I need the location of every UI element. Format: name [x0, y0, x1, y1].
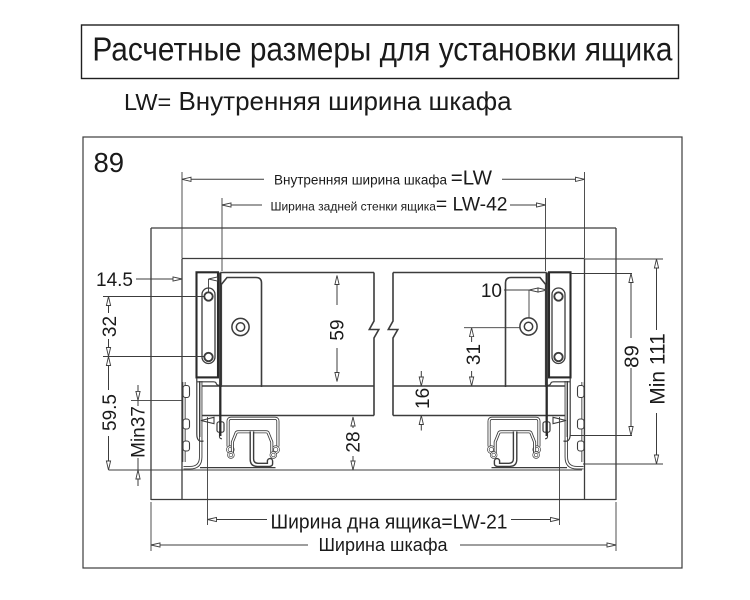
svg-text:28: 28 [344, 431, 365, 452]
svg-text:14.5: 14.5 [96, 270, 133, 291]
svg-text:Ширина шкафа: Ширина шкафа [318, 535, 448, 555]
svg-text:Min37: Min37 [129, 406, 150, 458]
svg-text:Ширина дна ящика=LW-21: Ширина дна ящика=LW-21 [271, 512, 508, 534]
svg-text:32: 32 [100, 316, 121, 337]
svg-text:89: 89 [94, 147, 125, 178]
svg-text:LW= Внутренняя ширина шкафа: LW= Внутренняя ширина шкафа [124, 86, 512, 116]
svg-text:59: 59 [328, 319, 349, 340]
svg-text:31: 31 [464, 344, 485, 365]
svg-text:Расчетные размеры для установк: Расчетные размеры для установки ящика [92, 31, 673, 68]
svg-text:Min 111: Min 111 [647, 333, 670, 405]
svg-text:59.5: 59.5 [100, 394, 121, 431]
svg-text:10: 10 [481, 281, 502, 302]
svg-text:89: 89 [621, 345, 644, 368]
svg-text:16: 16 [413, 388, 434, 409]
